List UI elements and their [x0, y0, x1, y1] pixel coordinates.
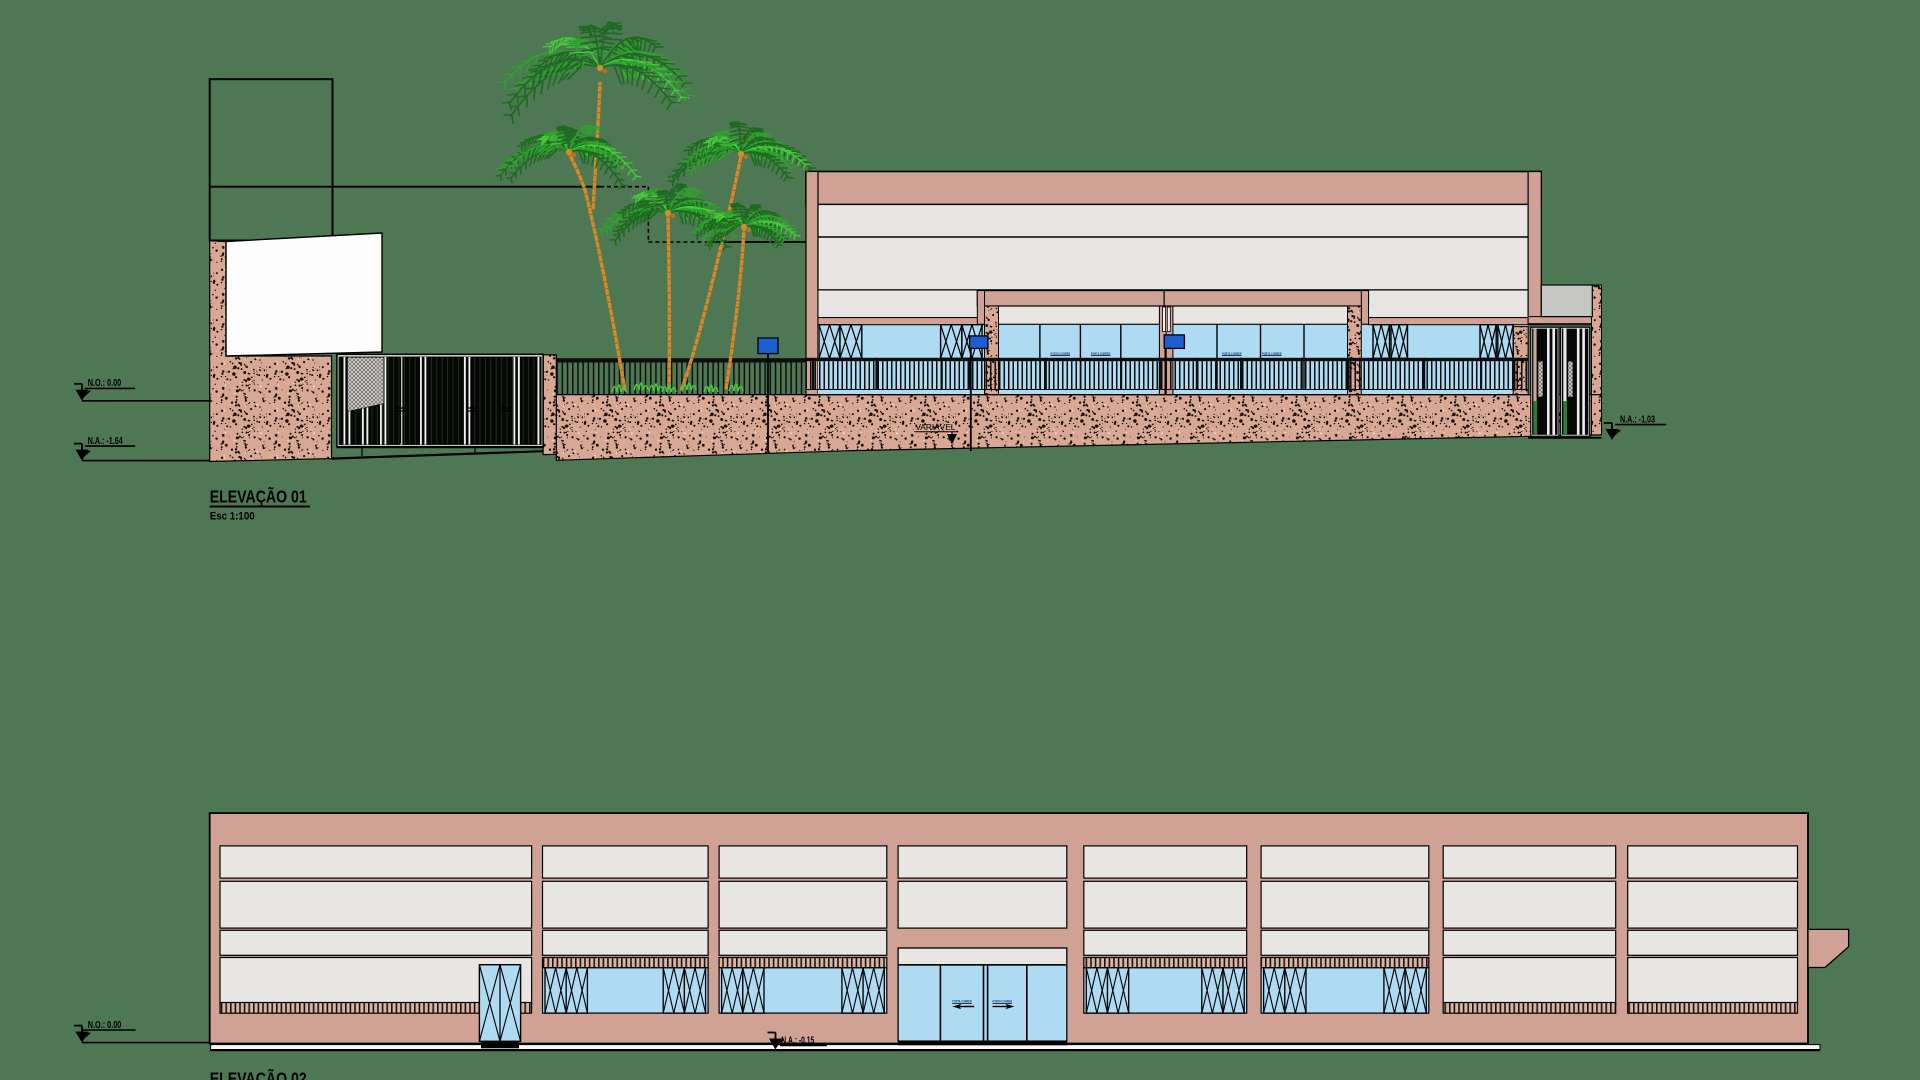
svg-text:ELEVAÇÃO 01: ELEVAÇÃO 01	[210, 486, 307, 507]
svg-text:N.A.: -0.15: N.A.: -0.15	[781, 1035, 814, 1046]
svg-text:PORTA CORRER: PORTA CORRER	[952, 999, 972, 1004]
svg-text:PORTA CORRER: PORTA CORRER	[1222, 351, 1242, 356]
svg-text:PORTA CORRER: PORTA CORRER	[1262, 351, 1282, 356]
svg-text:N.A.: -1,03: N.A.: -1,03	[1620, 414, 1655, 425]
svg-text:PORTA CORRER: PORTA CORRER	[1091, 351, 1111, 356]
svg-text:N.A.: -1.64: N.A.: -1.64	[88, 436, 123, 447]
svg-text:N.O.: 0.00: N.O.: 0.00	[88, 1020, 122, 1031]
svg-text:PORTA CORRER: PORTA CORRER	[1051, 351, 1071, 356]
svg-text:N.O.: 0.00: N.O.: 0.00	[88, 378, 122, 389]
svg-text:VARIÁVEL: VARIÁVEL	[915, 423, 956, 432]
svg-text:Esc 1:100: Esc 1:100	[210, 511, 255, 523]
svg-text:ELEVAÇÃO 02: ELEVAÇÃO 02	[210, 1068, 307, 1080]
svg-text:PORTA CORRER: PORTA CORRER	[993, 999, 1013, 1004]
